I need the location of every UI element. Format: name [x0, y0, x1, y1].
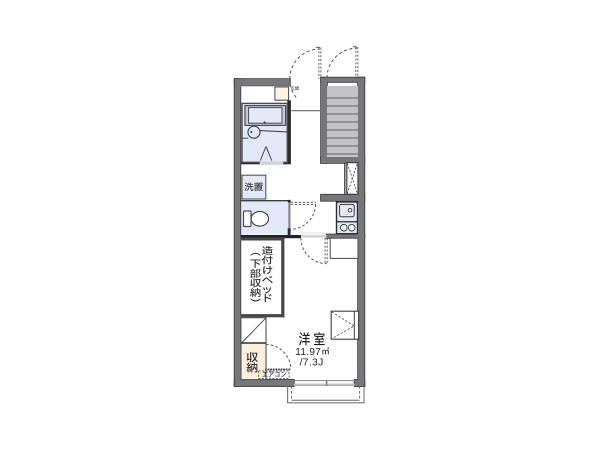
svg-text:/7.3J: /7.3J [300, 358, 324, 369]
svg-text:11.97: 11.97 [295, 347, 321, 358]
